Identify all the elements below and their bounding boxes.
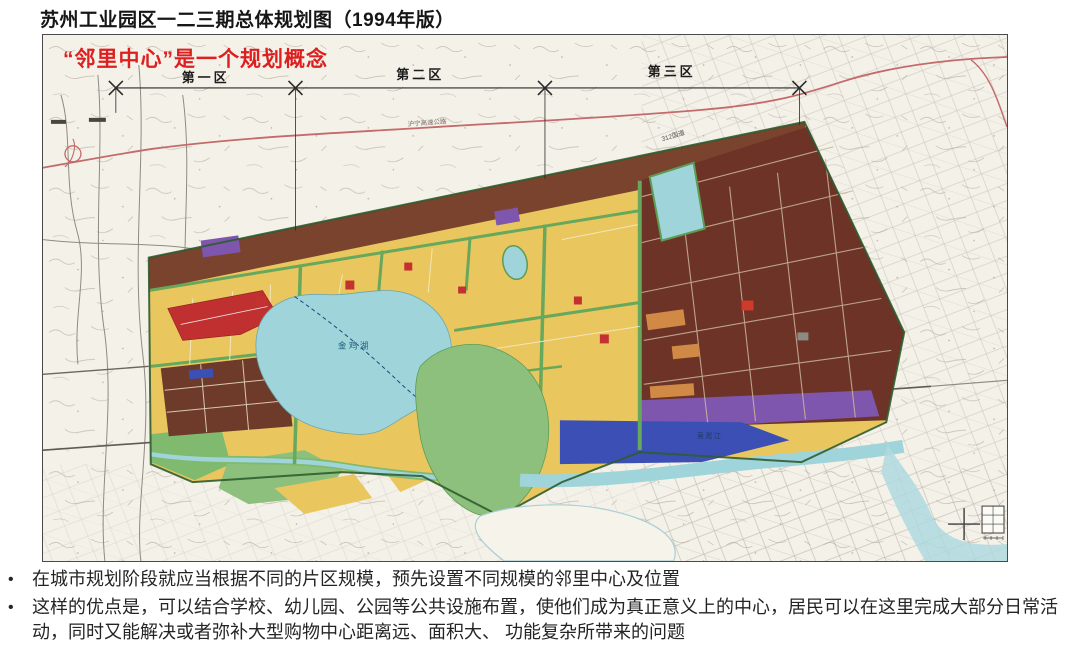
- bullet-text: 这样的优点是，可以结合学校、幼儿园、公园等公共设施布置，使他们成为真正意义上的中…: [32, 595, 1058, 645]
- map-annotation: “邻里中心”是一个规划概念: [63, 43, 328, 73]
- district-label-3: 第三区: [648, 64, 696, 79]
- bullet-marker: •: [8, 595, 32, 645]
- bullet-text: 在城市规划阶段就应当根据不同的片区规模，预先设置不同规模的邻里中心及位置: [32, 567, 1058, 592]
- planning-map-canvas: 第一区 第二区 第三区 沪宁高速公路 312国道 金鸡湖 吴淞江: [43, 35, 1007, 561]
- planning-map: 第一区 第二区 第三区 沪宁高速公路 312国道 金鸡湖 吴淞江 “邻里中心”是…: [42, 34, 1008, 562]
- bullet-list: • 在城市规划阶段就应当根据不同的片区规模，预先设置不同规模的邻里中心及位置 •…: [8, 567, 1070, 648]
- page-title: 苏州工业园区一二三期总体规划图（1994年版）: [40, 5, 455, 32]
- bullet-item: • 这样的优点是，可以结合学校、幼儿园、公园等公共设施布置，使他们成为真正意义上…: [8, 595, 1070, 645]
- bullet-marker: •: [8, 567, 32, 592]
- river-label: 吴淞江: [697, 431, 722, 440]
- district-label-2: 第二区: [396, 67, 444, 82]
- bullet-item: • 在城市规划阶段就应当根据不同的片区规模，预先设置不同规模的邻里中心及位置: [8, 567, 1070, 592]
- lake-label: 金鸡湖: [338, 340, 371, 350]
